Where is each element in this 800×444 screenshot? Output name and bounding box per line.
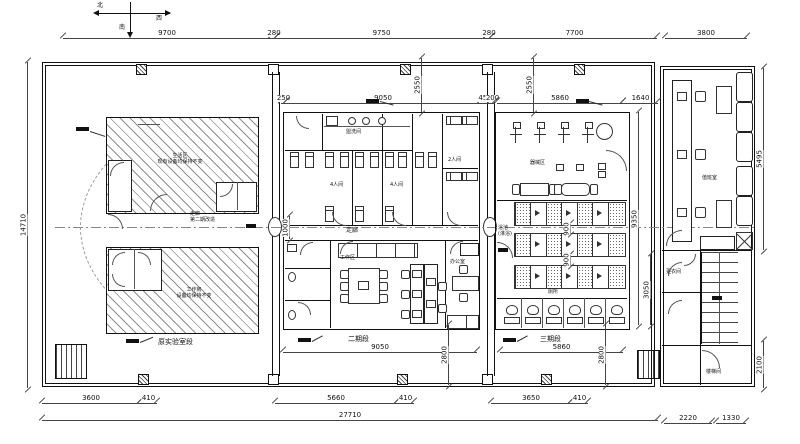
wall-line (285, 150, 412, 151)
chair-symbol (512, 184, 520, 195)
corridor-note: 走廊第二期改造 (190, 212, 215, 224)
table-symbol (561, 183, 590, 196)
room-label: 楼梯间 (706, 370, 721, 376)
table-symbol (716, 200, 732, 228)
section-label-left: 原实验室段 (158, 338, 193, 346)
toilet-tank-symbol (525, 317, 541, 324)
fixture-symbol (598, 163, 606, 170)
column-marker (136, 64, 147, 75)
wall-line (330, 240, 331, 328)
room-label: 厕所 (548, 290, 558, 296)
sofa-symbol (736, 196, 753, 226)
computer-symbol (426, 278, 436, 286)
chair-symbol (401, 290, 410, 299)
cabinet-symbol (460, 243, 479, 256)
corridor-wall (285, 240, 478, 241)
wall-line (442, 114, 443, 225)
dim-9700: 9700 (63, 38, 271, 39)
equipment-symbol (510, 122, 522, 148)
joint-cap-marker (268, 64, 279, 75)
counter-line (324, 126, 410, 127)
wall-line (497, 200, 627, 201)
column-marker (574, 64, 585, 75)
toilet-tank-symbol (588, 317, 604, 324)
section-label-right: 三期段 (540, 335, 561, 343)
dim-27710: 27710 (42, 420, 658, 421)
bed-symbol (428, 152, 437, 168)
dim-9350: 9350 (638, 112, 639, 325)
dim-5495: 5495 (763, 68, 764, 250)
wall-line (412, 114, 413, 225)
note-bar (298, 338, 311, 342)
computer-symbol (677, 92, 687, 101)
wall-line (237, 182, 238, 210)
room-label: 4人间 (390, 183, 403, 189)
chair-symbol (401, 270, 410, 279)
computer-symbol (412, 310, 422, 318)
compass-label: 南 (119, 25, 125, 32)
ramp-symbol (55, 344, 87, 379)
computer-symbol (412, 270, 422, 278)
section-label-mid: 二期段 (348, 335, 369, 343)
bed-symbol (462, 116, 478, 125)
wall-line (662, 250, 752, 251)
floor-plan: 北 西 南 9700 280 9750 280 7700 3800 14710 … (0, 0, 800, 444)
bed-symbol (398, 152, 407, 168)
toilet-symbol (506, 305, 518, 315)
chair-symbol (379, 282, 388, 291)
equipment-symbol (582, 122, 594, 148)
equipment-symbol (558, 122, 570, 148)
chair-symbol (340, 294, 349, 303)
dim-2550: 2550 (421, 58, 422, 112)
dim-2800: 2800 (448, 325, 449, 385)
chair-symbol (379, 294, 388, 303)
toilet-tank-symbol (504, 317, 520, 324)
round-equipment-symbol (596, 123, 613, 140)
compass-axis-line (95, 13, 170, 14)
bed-symbol (370, 152, 379, 168)
chair-symbol (554, 184, 562, 195)
chair-symbol (695, 207, 706, 218)
desk-symbol (424, 264, 438, 324)
chair-symbol (340, 282, 349, 291)
dim-1000: 1000 (289, 216, 290, 239)
toilet-tank-symbol (546, 317, 562, 324)
note-bar (366, 99, 379, 103)
room-label: 盥洗间 (346, 130, 361, 136)
wall-line (662, 345, 752, 346)
fixture-symbol (287, 244, 297, 252)
fixture-symbol (556, 164, 564, 171)
chair-symbol (459, 265, 468, 274)
wall-line (285, 300, 330, 301)
note-line (138, 124, 160, 125)
toilet-symbol (611, 305, 623, 315)
bed-symbol (325, 152, 334, 168)
table-symbol (716, 86, 732, 114)
sink-symbol (378, 117, 386, 125)
table-center (358, 281, 369, 290)
computer-symbol (426, 300, 436, 308)
wall-line (662, 292, 700, 293)
computer-symbol (677, 208, 687, 217)
dim-9050: 9050 (286, 103, 480, 104)
dim-3050: 3050 (650, 255, 651, 325)
column-marker (400, 64, 411, 75)
room-label: 器械区 (530, 161, 545, 167)
column-marker (541, 374, 552, 385)
toilet-tank-symbol (609, 317, 625, 324)
corridor-wall (285, 225, 478, 226)
compass-axis-line (130, 2, 131, 35)
bed-symbol (305, 152, 314, 168)
toilet-symbol (527, 305, 539, 315)
dim-450: 450 (480, 103, 490, 104)
room-label: 工作区 (340, 256, 355, 262)
bed-symbol (355, 152, 364, 168)
corridor-label: 走廊 (346, 228, 358, 235)
stall-partition (563, 298, 564, 328)
dim-9750: 9750 (277, 38, 486, 39)
toilet-symbol (569, 305, 581, 315)
sofa-symbol (736, 102, 753, 132)
dim-2100: 2100 (763, 341, 764, 388)
washer-symbol (326, 116, 338, 126)
dim-1640: 1640 (623, 103, 658, 104)
sink-symbol (348, 117, 356, 125)
bed-symbol (290, 152, 299, 168)
dim-3600: 3600 (42, 403, 140, 404)
wall-line (134, 249, 135, 289)
room-label: 工作房设备均保持不变 (150, 288, 238, 300)
desk-symbol (672, 80, 692, 242)
computer-symbol (677, 150, 687, 159)
chair-symbol (590, 184, 598, 195)
ramp-symbol (637, 350, 660, 379)
stall-partition (584, 298, 585, 328)
dim-2550: 2550 (533, 58, 534, 112)
joint-cap-marker (268, 374, 279, 385)
note-bar (76, 127, 89, 131)
wall-line (322, 114, 323, 150)
column-marker (138, 374, 149, 385)
bed-symbol (355, 206, 364, 222)
chair-symbol (401, 310, 410, 319)
dim-410: 410 (140, 403, 157, 404)
note-bar (126, 339, 139, 343)
toilet-symbol (288, 310, 296, 320)
sofa-symbol (736, 132, 753, 162)
column-marker (397, 374, 408, 385)
chair-symbol (438, 304, 447, 313)
chair-symbol (459, 293, 468, 302)
dim-900: 900 (570, 224, 571, 233)
sofa-symbol (736, 166, 753, 196)
bench-symbol (700, 236, 735, 250)
dim-1330: 1330 (716, 423, 746, 424)
compass-arrow-icon (165, 10, 171, 16)
fixture-symbol (598, 171, 606, 178)
room-label: 浴池(淋浴) (498, 226, 512, 238)
toilet-symbol (548, 305, 560, 315)
wall-line (442, 168, 478, 169)
bed-symbol (446, 116, 462, 125)
compass-arrow-icon (93, 10, 99, 16)
dim-5860: 5860 (497, 103, 623, 104)
room-label: 值班室 (702, 176, 717, 182)
bed-symbol (462, 172, 478, 181)
note-bar (503, 338, 516, 342)
dim-5660: 5660 (275, 403, 397, 404)
wall-line (352, 150, 353, 225)
sofa-symbol (736, 72, 753, 102)
desk-symbol (452, 276, 479, 291)
room-label: 4人间 (330, 183, 343, 189)
dim-3650: 3650 (491, 403, 571, 404)
compass-label: 北 (97, 3, 103, 10)
room-label: 生活区现有设备均保持不变 (136, 154, 224, 166)
room-label: 办公室 (450, 260, 465, 266)
bed-symbol (415, 152, 424, 168)
compass-label: 西 (156, 16, 162, 23)
toilet-symbol (590, 305, 602, 315)
equipment-symbol (534, 122, 546, 148)
fixture-symbol (576, 164, 584, 171)
dim-7700: 7700 (492, 38, 657, 39)
shower-stall-row (514, 265, 626, 289)
stall-partition (521, 298, 522, 328)
shaft-symbol (736, 232, 753, 250)
table-symbol (520, 183, 549, 196)
wall-line (382, 114, 383, 225)
stall-partition (542, 298, 543, 328)
chair-symbol (379, 270, 388, 279)
bed-symbol (340, 152, 349, 168)
note-bar (246, 224, 256, 228)
computer-symbol (412, 290, 422, 298)
dim-900: 900 (570, 255, 571, 265)
chair-symbol (695, 149, 706, 160)
dim-410: 410 (571, 403, 588, 404)
chair-symbol (695, 91, 706, 102)
chair-symbol (438, 282, 447, 291)
toilet-symbol (288, 272, 296, 282)
sink-symbol (362, 117, 370, 125)
room-label: 2人间 (448, 158, 461, 164)
chair-symbol (340, 270, 349, 279)
room-label: 更衣间 (666, 270, 681, 276)
toilet-tank-symbol (567, 317, 583, 324)
wall-line (497, 298, 627, 299)
cabinet-row (447, 315, 479, 329)
dim-3800: 3800 (665, 38, 747, 39)
bed-symbol (446, 172, 462, 181)
note-bar (576, 99, 589, 103)
dim-14710: 14710 (27, 62, 28, 388)
bed-symbol (385, 152, 394, 168)
dim-2220: 2220 (664, 423, 712, 424)
note-bar (712, 296, 722, 300)
dim-410: 410 (397, 403, 414, 404)
wall-line (285, 268, 330, 269)
dim-2800: 2800 (605, 325, 606, 385)
